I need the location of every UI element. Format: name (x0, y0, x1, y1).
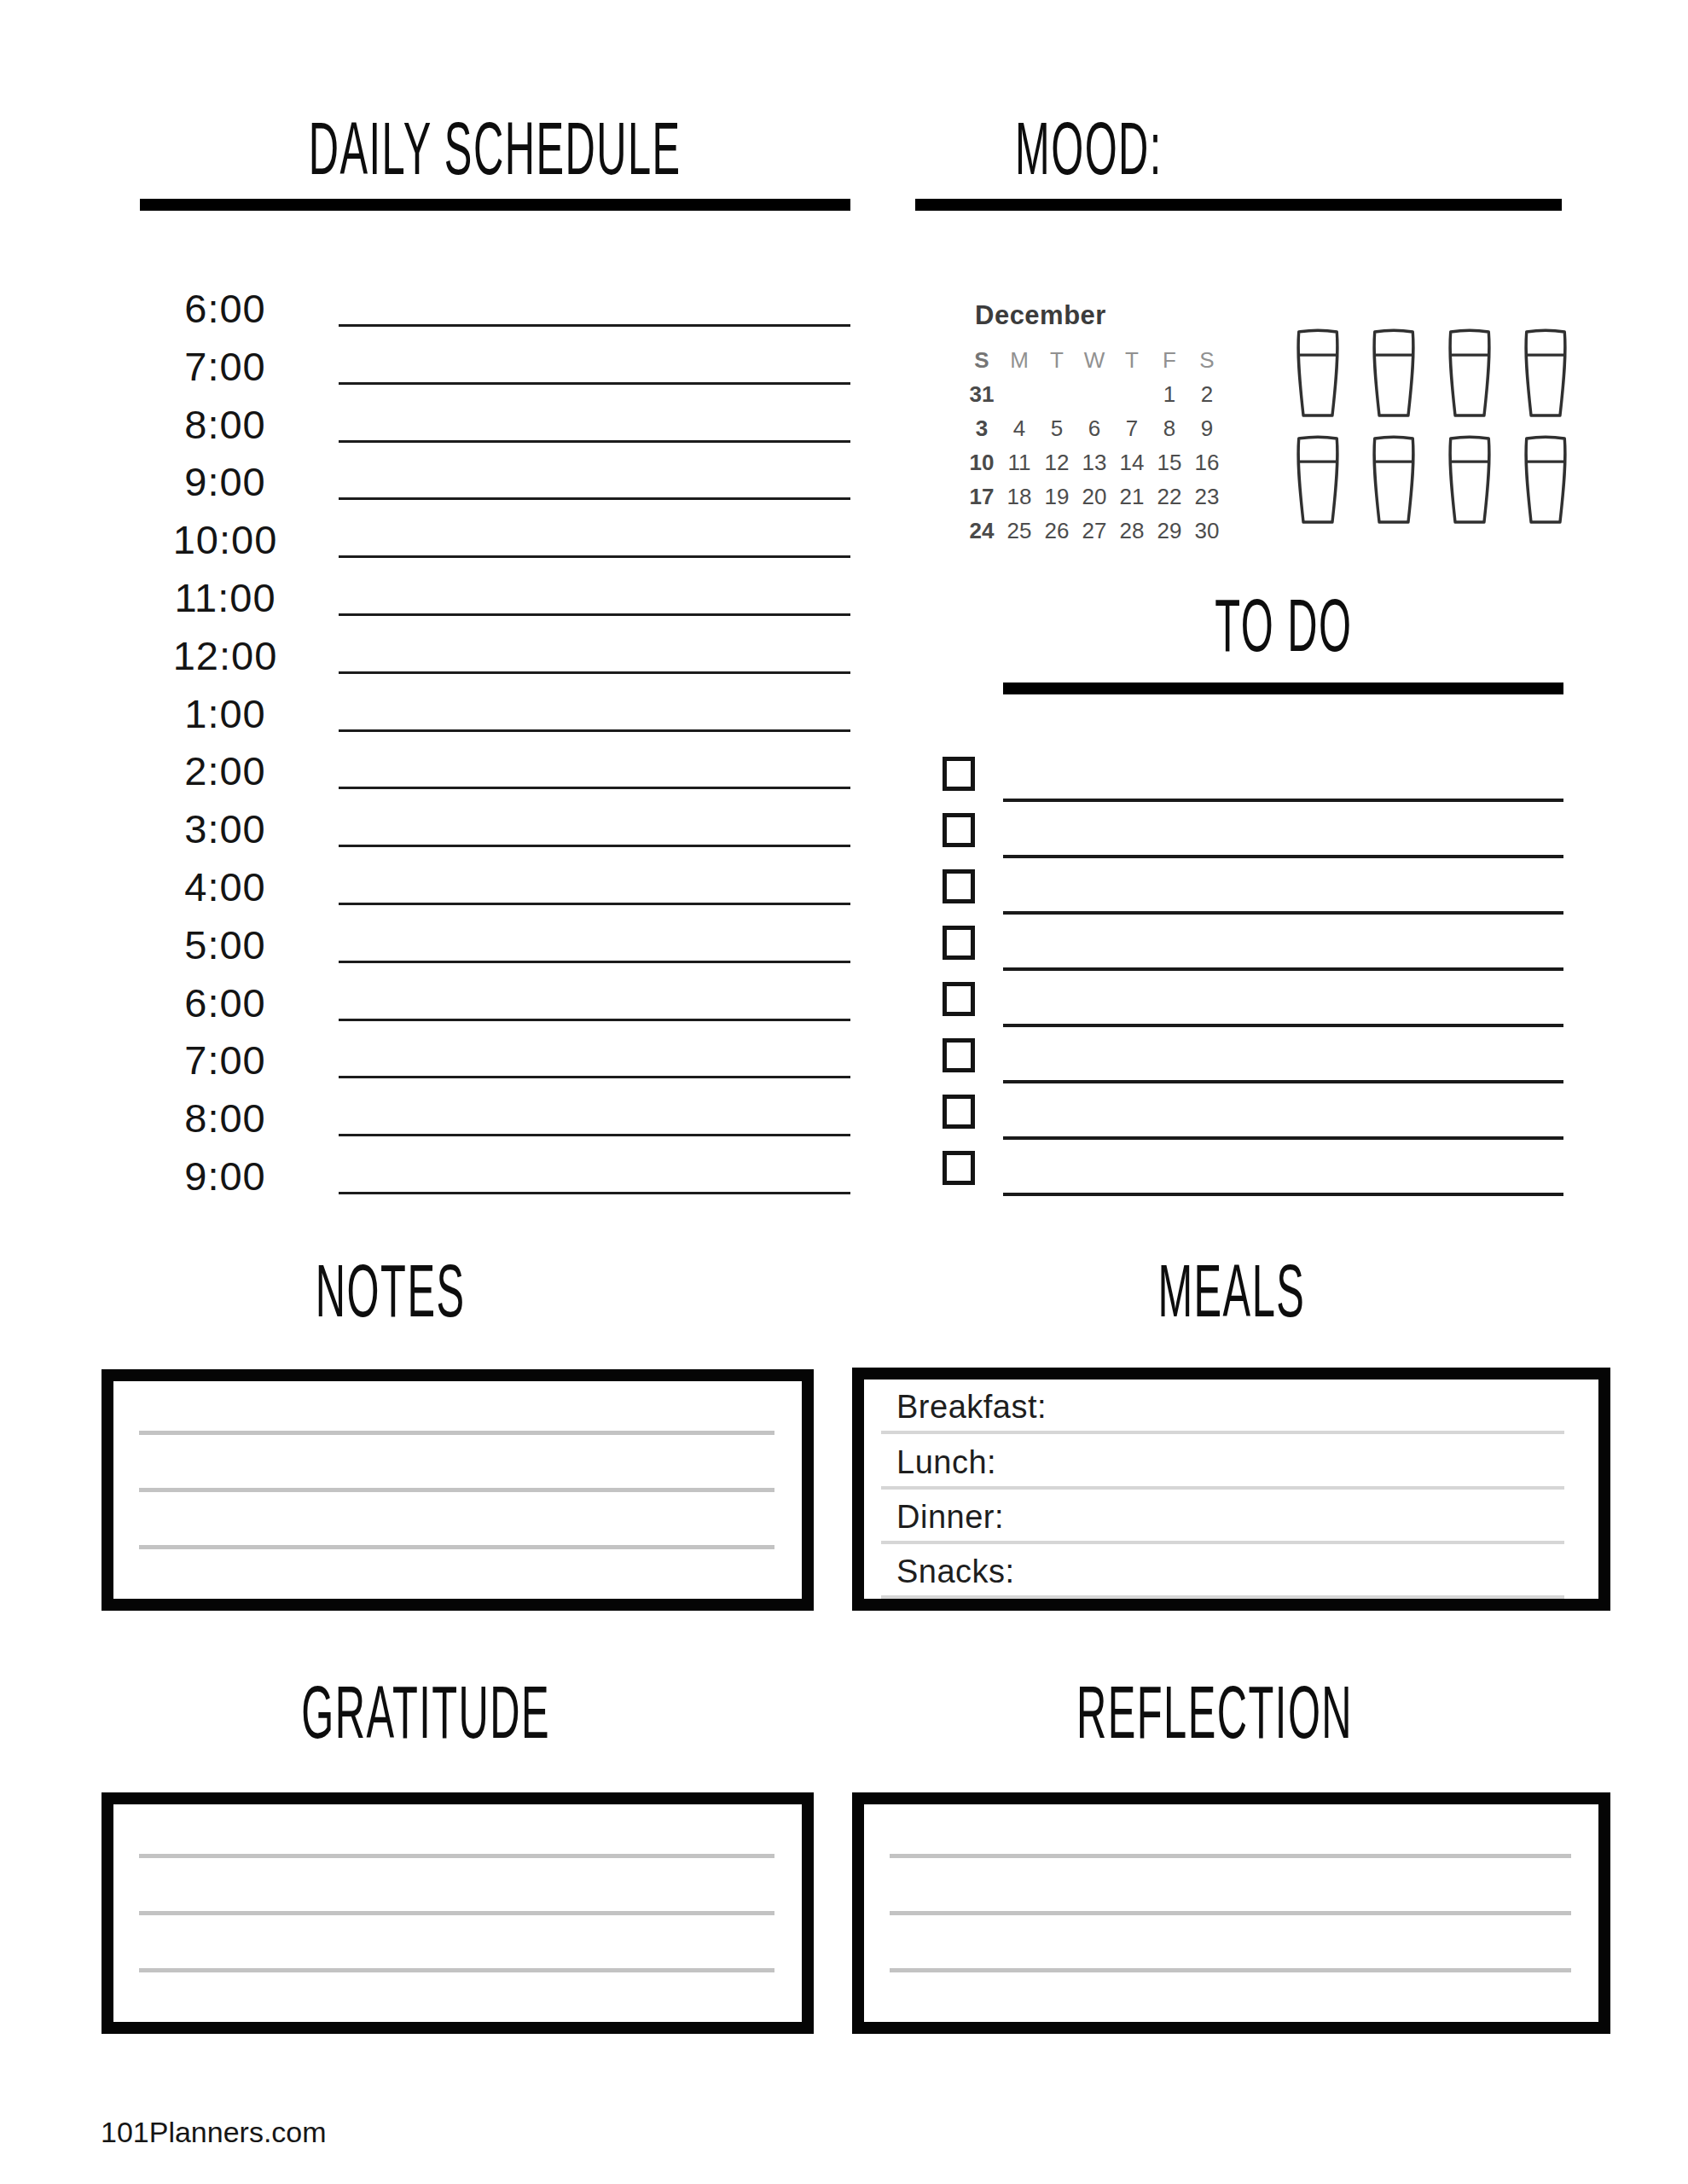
schedule-row: 5:00 (140, 921, 850, 979)
water-cup-icon[interactable] (1366, 433, 1421, 527)
schedule-row: 8:00 (140, 1095, 850, 1153)
gratitude-title: GRATITUDE (102, 1684, 750, 1740)
water-cup-icon[interactable] (1291, 433, 1345, 527)
calendar-cell: 8 (1151, 411, 1188, 445)
calendar-cell: 29 (1151, 514, 1188, 548)
daily-planner-page: DAILY SCHEDULE 6:00 7:00 8:00 9:00 (0, 0, 1688, 2184)
calendar-cell: T (1113, 343, 1151, 377)
calendar-cell: 20 (1076, 479, 1113, 514)
schedule-time-label: 9:00 (140, 458, 310, 505)
reflection-title: REFLECTION (852, 1684, 1577, 1740)
reflection-box (852, 1792, 1610, 2034)
reflection-title-text: REFLECTION (1076, 1675, 1353, 1749)
schedule-row: 11:00 (140, 574, 850, 632)
todo-entry-line[interactable] (1003, 1193, 1563, 1196)
todo-row (943, 1095, 1563, 1151)
schedule-time-label: 8:00 (140, 401, 310, 448)
calendar-cell: 1 (1151, 377, 1188, 411)
schedule-time-label: 9:00 (140, 1153, 310, 1199)
todo-entry-line[interactable] (1003, 855, 1563, 858)
calendar-cell: 7 (1113, 411, 1151, 445)
water-tracker (1291, 326, 1573, 527)
todo-row (943, 926, 1563, 982)
meal-row: Lunch: (864, 1434, 1598, 1489)
schedule-row: 4:00 (140, 863, 850, 921)
calendar-cell: 31 (963, 377, 1001, 411)
schedule-entry-line[interactable] (339, 1076, 850, 1078)
todo-row (943, 813, 1563, 869)
schedule-entry-line[interactable] (339, 613, 850, 616)
todo-entry-line[interactable] (1003, 967, 1563, 971)
calendar-cell: 13 (1076, 445, 1113, 479)
schedule-row: 3:00 (140, 805, 850, 863)
schedule-row: 12:00 (140, 632, 850, 690)
schedule-time-label: 2:00 (140, 747, 310, 794)
mood-title: MOOD: (1015, 120, 1562, 177)
calendar-cell (1001, 377, 1038, 411)
calendar-cell: 9 (1188, 411, 1226, 445)
schedule-entry-line[interactable] (339, 671, 850, 674)
schedule-entry-line[interactable] (339, 729, 850, 732)
calendar-cell: 27 (1076, 514, 1113, 548)
gratitude-box (102, 1792, 814, 2034)
calendar-cell (1038, 377, 1076, 411)
schedule-time-label: 7:00 (140, 343, 310, 390)
todo-row (943, 869, 1563, 926)
schedule-row: 6:00 (140, 285, 850, 343)
water-cup-icon[interactable] (1518, 433, 1573, 527)
calendar-cell: 18 (1001, 479, 1038, 514)
meal-rows: Breakfast: Lunch: Dinner: Snacks: (864, 1380, 1598, 1599)
schedule-time-label: 12:00 (140, 632, 310, 679)
calendar-cell: 23 (1188, 479, 1226, 514)
site-credit: 101Planners.com (101, 2116, 327, 2149)
calendar-cell: 12 (1038, 445, 1076, 479)
schedule-time-label: 4:00 (140, 863, 310, 910)
meal-entry-line[interactable] (881, 1595, 1564, 1599)
calendar-cell: 14 (1113, 445, 1151, 479)
water-cup-icon[interactable] (1518, 326, 1573, 421)
calendar-cell: W (1076, 343, 1113, 377)
calendar-cell: 21 (1113, 479, 1151, 514)
schedule-entry-line[interactable] (339, 787, 850, 789)
notes-box (102, 1369, 814, 1611)
schedule-entry-line[interactable] (339, 382, 850, 385)
calendar-grid: S M T W T F S 31 (963, 343, 1244, 548)
calendar-cell: F (1151, 343, 1188, 377)
calendar-cell: 26 (1038, 514, 1076, 548)
mini-calendar: December S M T W T F S 31 (963, 300, 1244, 548)
schedule-row: 1:00 (140, 690, 850, 748)
todo-list (943, 757, 1563, 1207)
gratitude-writing-line[interactable] (139, 1911, 774, 1915)
calendar-cell: 11 (1001, 445, 1038, 479)
calendar-cell (1113, 377, 1151, 411)
reflection-writing-line[interactable] (890, 1968, 1571, 1972)
schedule-entry-line[interactable] (339, 555, 850, 558)
schedule-time-label: 11:00 (140, 574, 310, 621)
schedule-time-label: 1:00 (140, 690, 310, 737)
calendar-cell: 10 (963, 445, 1001, 479)
calendar-cell: 28 (1113, 514, 1151, 548)
meal-label: Lunch: (896, 1444, 996, 1481)
schedule-entry-line[interactable] (339, 845, 850, 847)
schedule-row: 10:00 (140, 516, 850, 574)
gratitude-writing-line[interactable] (139, 1968, 774, 1972)
schedule-time-label: 7:00 (140, 1037, 310, 1083)
calendar-cell: 4 (1001, 411, 1038, 445)
schedule-time-label: 5:00 (140, 921, 310, 968)
water-cup-icon[interactable] (1442, 326, 1497, 421)
mood-title-text: MOOD: (1015, 111, 1163, 185)
notes-title: NOTES (102, 1263, 680, 1319)
calendar-cell: 3 (963, 411, 1001, 445)
notes-writing-line[interactable] (139, 1488, 774, 1492)
schedule-time-label: 3:00 (140, 805, 310, 852)
reflection-writing-line[interactable] (890, 1911, 1571, 1915)
calendar-cell: S (1188, 343, 1226, 377)
schedule-entry-line[interactable] (339, 440, 850, 443)
calendar-cell: 22 (1151, 479, 1188, 514)
todo-entry-line[interactable] (1003, 1136, 1563, 1140)
notes-title-text: NOTES (316, 1253, 466, 1327)
todo-title: TO DO (1003, 597, 1563, 653)
reflection-writing-line[interactable] (890, 1854, 1571, 1858)
calendar-cell: 15 (1151, 445, 1188, 479)
todo-checkbox[interactable] (943, 1151, 975, 1185)
todo-checkbox[interactable] (943, 982, 975, 1016)
schedule-entry-line[interactable] (339, 1019, 850, 1021)
calendar-cell: 25 (1001, 514, 1038, 548)
calendar-cell: T (1038, 343, 1076, 377)
todo-entry-line[interactable] (1003, 799, 1563, 802)
schedule-list: 6:00 7:00 8:00 9:00 10:00 (140, 285, 850, 1211)
meals-box: Breakfast: Lunch: Dinner: Snacks: (852, 1368, 1610, 1611)
calendar-cell: 17 (963, 479, 1001, 514)
schedule-time-label: 10:00 (140, 516, 310, 563)
schedule-row: 2:00 (140, 747, 850, 805)
todo-row (943, 1151, 1563, 1207)
calendar-cell: 19 (1038, 479, 1076, 514)
schedule-entry-line[interactable] (339, 903, 850, 905)
daily-schedule-title: DAILY SCHEDULE (140, 120, 850, 177)
meal-label: Dinner: (896, 1499, 1004, 1536)
todo-checkbox[interactable] (943, 926, 975, 960)
schedule-entry-line[interactable] (339, 324, 850, 327)
todo-checkbox[interactable] (943, 1038, 975, 1072)
todo-divider (1003, 682, 1563, 694)
meals-title: MEALS (852, 1263, 1610, 1319)
daily-schedule-divider (140, 199, 850, 211)
schedule-row: 9:00 (140, 458, 850, 516)
calendar-cell: 5 (1038, 411, 1076, 445)
todo-row (943, 1038, 1563, 1095)
mood-divider (915, 199, 1562, 211)
meal-label: Breakfast: (896, 1389, 1047, 1426)
schedule-entry-line[interactable] (339, 1134, 850, 1136)
calendar-cell: 30 (1188, 514, 1226, 548)
meal-row: Snacks: (864, 1544, 1598, 1599)
todo-row (943, 757, 1563, 813)
calendar-cell: S (963, 343, 1001, 377)
todo-entry-line[interactable] (1003, 1024, 1563, 1027)
schedule-row: 8:00 (140, 401, 850, 459)
todo-entry-line[interactable] (1003, 1080, 1563, 1083)
notes-writing-line[interactable] (139, 1431, 774, 1435)
calendar-cell: 24 (963, 514, 1001, 548)
schedule-row: 9:00 (140, 1153, 850, 1211)
notes-writing-line[interactable] (139, 1545, 774, 1549)
gratitude-writing-line[interactable] (139, 1854, 774, 1858)
todo-checkbox[interactable] (943, 813, 975, 847)
meal-row: Breakfast: (864, 1380, 1598, 1434)
daily-schedule-title-text: DAILY SCHEDULE (309, 111, 682, 185)
calendar-month-label: December (975, 300, 1244, 331)
todo-checkbox[interactable] (943, 869, 975, 903)
meal-row: Dinner: (864, 1490, 1598, 1544)
schedule-row: 7:00 (140, 343, 850, 401)
schedule-row: 6:00 (140, 979, 850, 1037)
calendar-cell: M (1001, 343, 1038, 377)
calendar-cell: 2 (1188, 377, 1226, 411)
water-cup-icon[interactable] (1366, 326, 1421, 421)
water-cup-icon[interactable] (1442, 433, 1497, 527)
gratitude-title-text: GRATITUDE (301, 1675, 550, 1749)
todo-checkbox[interactable] (943, 1095, 975, 1129)
schedule-entry-line[interactable] (339, 497, 850, 500)
todo-title-text: TO DO (1215, 588, 1352, 662)
calendar-cell: 16 (1188, 445, 1226, 479)
todo-checkbox[interactable] (943, 757, 975, 791)
water-cup-icon[interactable] (1291, 326, 1345, 421)
meals-title-text: MEALS (1157, 1253, 1305, 1327)
calendar-cell: 6 (1076, 411, 1113, 445)
schedule-time-label: 8:00 (140, 1095, 310, 1141)
meal-label: Snacks: (896, 1554, 1015, 1590)
schedule-entry-line[interactable] (339, 1192, 850, 1194)
todo-row (943, 982, 1563, 1038)
schedule-time-label: 6:00 (140, 979, 310, 1026)
todo-entry-line[interactable] (1003, 911, 1563, 915)
schedule-row: 7:00 (140, 1037, 850, 1095)
calendar-cell (1076, 377, 1113, 411)
schedule-time-label: 6:00 (140, 285, 310, 332)
schedule-entry-line[interactable] (339, 961, 850, 963)
